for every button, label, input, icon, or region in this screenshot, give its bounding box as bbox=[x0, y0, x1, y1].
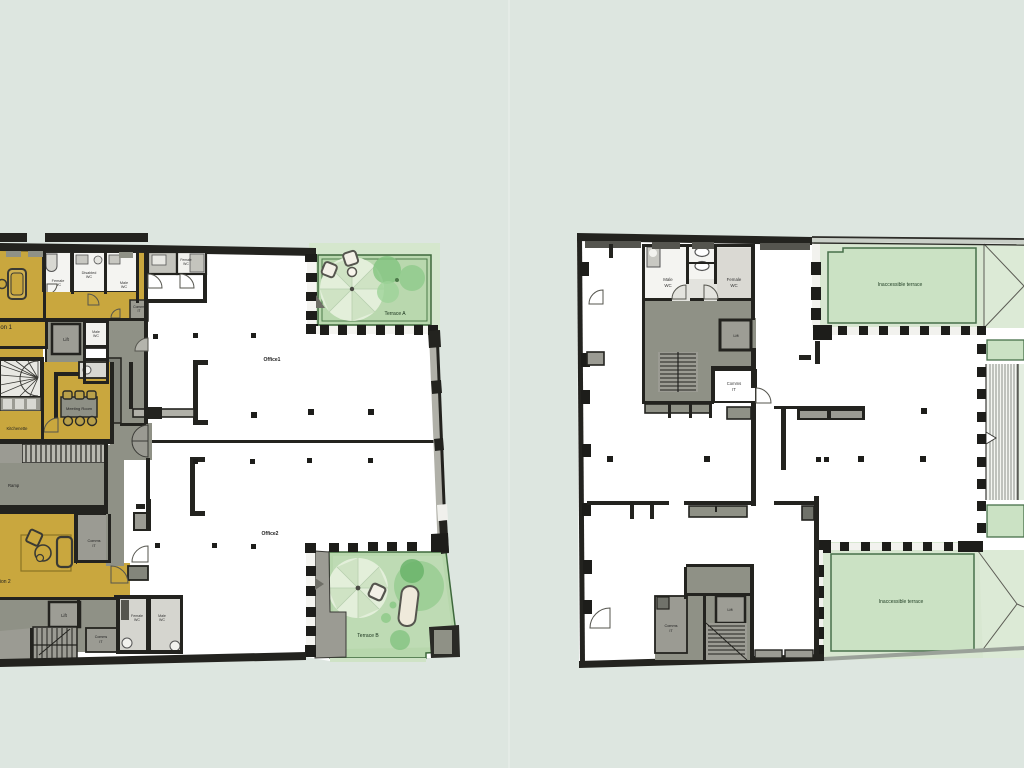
svg-text:Reception 2: Reception 2 bbox=[0, 579, 11, 585]
svg-text:Lift: Lift bbox=[727, 607, 733, 612]
svg-text:WC: WC bbox=[183, 262, 189, 266]
svg-text:Reception 1: Reception 1 bbox=[0, 325, 13, 331]
svg-text:Comms: Comms bbox=[95, 635, 108, 639]
svg-text:IT: IT bbox=[137, 309, 140, 313]
svg-text:Inaccessible terrace: Inaccessible terrace bbox=[878, 282, 923, 288]
svg-text:Male: Male bbox=[663, 277, 673, 282]
svg-text:Terrace A: Terrace A bbox=[384, 311, 406, 317]
svg-text:Comms: Comms bbox=[727, 381, 741, 386]
svg-text:Meeting Room: Meeting Room bbox=[66, 406, 93, 411]
svg-text:Female: Female bbox=[727, 277, 742, 282]
svg-text:Lift: Lift bbox=[63, 337, 69, 342]
svg-text:IT: IT bbox=[732, 387, 736, 392]
svg-text:WC: WC bbox=[664, 283, 671, 288]
svg-text:Lift: Lift bbox=[61, 613, 67, 618]
svg-text:Ramp: Ramp bbox=[8, 483, 20, 488]
svg-text:WC: WC bbox=[93, 334, 99, 338]
svg-text:WC: WC bbox=[121, 285, 128, 289]
svg-text:Office2: Office2 bbox=[262, 531, 279, 537]
svg-text:Comms: Comms bbox=[87, 539, 100, 543]
svg-text:WC: WC bbox=[730, 283, 737, 288]
svg-text:Office1: Office1 bbox=[264, 357, 281, 363]
svg-text:WC: WC bbox=[134, 618, 140, 622]
svg-text:Terrace B: Terrace B bbox=[357, 633, 379, 639]
svg-text:Inaccessible terrace: Inaccessible terrace bbox=[879, 599, 924, 605]
svg-text:Comms: Comms bbox=[664, 624, 677, 628]
svg-text:Kitchenette: Kitchenette bbox=[7, 426, 29, 431]
svg-text:WC: WC bbox=[159, 618, 165, 622]
svg-text:WC: WC bbox=[86, 275, 93, 279]
svg-text:Lift: Lift bbox=[733, 333, 739, 338]
